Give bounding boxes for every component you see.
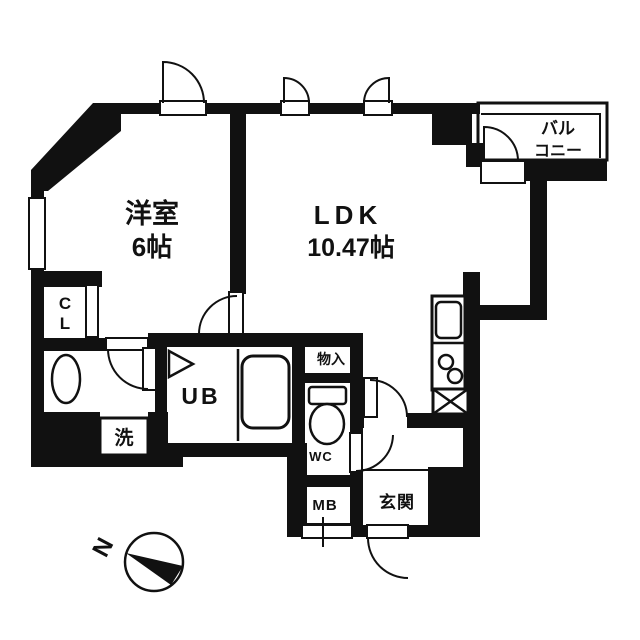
storage-label: 物入	[317, 351, 345, 367]
compass: N	[87, 533, 183, 591]
wall-hall-ldk-left	[350, 413, 364, 428]
floorplan-svg: N 洋室 6帖 LDK 10.47帖 バル コニー C L 洗 UB 物入 WC…	[0, 0, 640, 640]
wall-top-b	[308, 103, 366, 114]
compass-north-label: N	[87, 533, 119, 561]
kitchen-sink-icon	[436, 302, 461, 338]
washroom-door-leaf	[106, 338, 148, 350]
bath-folding-door-icon	[169, 351, 193, 377]
wall-mid-horizontal	[148, 333, 360, 347]
bedroom-door-leaf	[229, 292, 243, 334]
toilet-bowl-icon	[310, 404, 344, 444]
front-door-leaf	[367, 525, 408, 538]
ldk-hall-door-leaf	[364, 378, 377, 417]
window-top-ldk-2	[364, 101, 392, 115]
closet-label-c: C	[59, 294, 71, 313]
window-ldk-1-swing-arc	[284, 78, 309, 103]
wall-top-left-chamfer	[31, 103, 163, 191]
wall-bath-bottom	[155, 443, 297, 457]
unit-bath-label: UB	[181, 383, 220, 409]
wall-washer-right	[148, 412, 168, 467]
wall-right-step	[478, 305, 547, 320]
stove-burner-icon	[439, 355, 453, 369]
wall-bottom-right-mass	[428, 467, 480, 537]
entrance-label: 玄関	[379, 492, 415, 512]
window-bedroom-swing-arc	[163, 62, 204, 103]
wc-door-leaf	[350, 433, 362, 472]
bath-door-leaf	[143, 348, 156, 390]
front-door-swing-arc	[368, 538, 408, 578]
balcony-label-line1: バル	[541, 119, 575, 138]
window-ldk-2-swing-arc	[364, 78, 389, 103]
bathtub-icon	[242, 356, 289, 428]
wc-label: WC	[309, 449, 333, 464]
bedroom-name-label: 洋室	[125, 198, 179, 229]
mb-door-panel	[302, 525, 352, 538]
wall-closet-bottom	[31, 338, 106, 351]
closet-door-leaf	[86, 285, 98, 337]
ldk-name-label: LDK	[314, 200, 382, 230]
basin-icon	[52, 355, 80, 403]
ldk-size-label: 10.47帖	[307, 234, 395, 262]
wall-storage-bottom	[305, 373, 352, 383]
washer-label: 洗	[114, 426, 133, 449]
wall-column-top-right	[432, 103, 472, 145]
toilet-tank-icon	[309, 387, 346, 404]
balcony-label-line2: コニー	[534, 143, 582, 160]
mb-label: MB	[312, 497, 337, 514]
bedroom-size-label: 6帖	[132, 232, 172, 262]
stove-burner-icon	[448, 369, 462, 383]
window-left	[29, 198, 45, 269]
closet-label-l: L	[60, 314, 70, 333]
wall-closet-stub	[86, 271, 102, 285]
balcony-door-threshold	[481, 161, 525, 183]
wall-partition-bedroom-ldk	[230, 103, 246, 294]
floorplan-page: N 洋室 6帖 LDK 10.47帖 バル コニー C L 洗 UB 物入 WC…	[0, 0, 640, 640]
wall-entrance-bottom-left	[352, 525, 367, 537]
wall-mb-left	[287, 443, 307, 537]
window-top-bedroom	[160, 101, 206, 115]
window-top-ldk-1	[281, 101, 309, 115]
wall-right-upper	[530, 161, 547, 320]
